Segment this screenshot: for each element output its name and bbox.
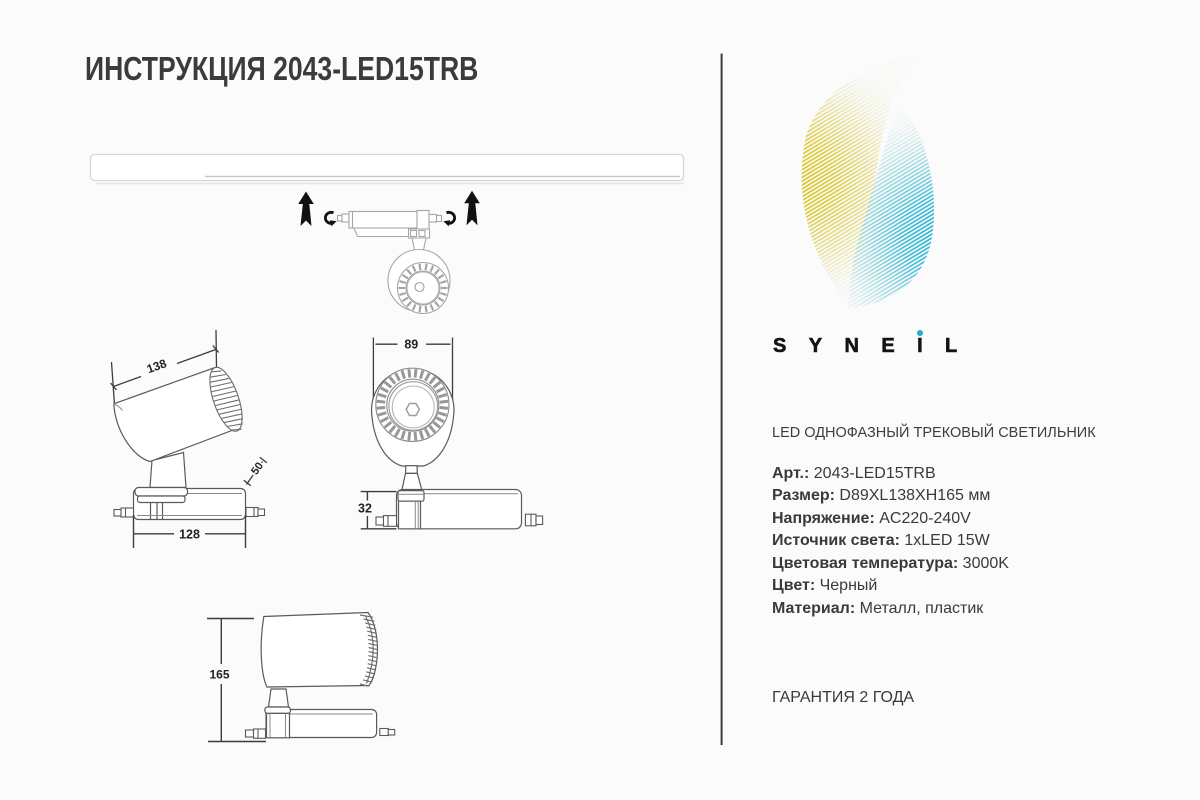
svg-text:32: 32 <box>358 502 372 516</box>
svg-text:50: 50 <box>249 460 266 477</box>
svg-text:165: 165 <box>209 668 229 682</box>
svg-text:89: 89 <box>404 338 418 352</box>
svg-text:128: 128 <box>179 528 200 542</box>
svg-text:138: 138 <box>145 356 169 376</box>
